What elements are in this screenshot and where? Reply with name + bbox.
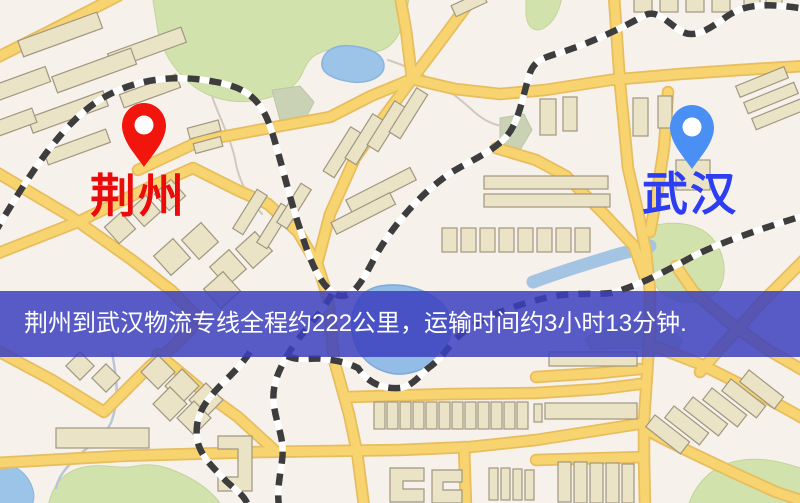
wuhan-label: 武汉 xyxy=(642,172,738,218)
map-screenshot: 荆州到武汉物流专线全程约222公里，运输时间约3小时13分钟. 荆州 武汉 xyxy=(0,0,800,503)
route-info-text: 荆州到武汉物流专线全程约222公里，运输时间约3小时13分钟. xyxy=(0,291,800,357)
jingzhou-pin-shape xyxy=(122,103,166,167)
wuhan-marker-icon xyxy=(669,104,715,170)
wuhan-pin-shape xyxy=(670,105,714,169)
jingzhou-label: 荆州 xyxy=(90,174,186,220)
map-canvas xyxy=(0,0,800,503)
jingzhou-pin-hole xyxy=(135,116,154,135)
jingzhou-marker-icon xyxy=(121,102,167,168)
route-info-banner: 荆州到武汉物流专线全程约222公里，运输时间约3小时13分钟. xyxy=(0,291,800,357)
wuhan-pin-hole xyxy=(683,118,702,137)
